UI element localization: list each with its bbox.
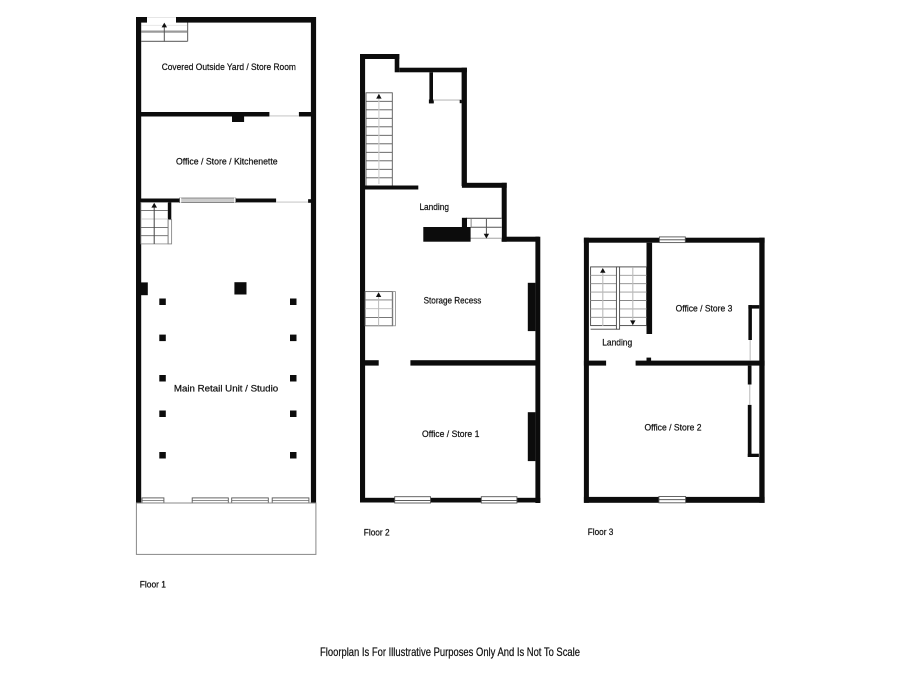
svg-text:Floor 3: Floor 3 bbox=[588, 527, 614, 537]
svg-text:Main Retail Unit / Studio: Main Retail Unit / Studio bbox=[174, 384, 278, 394]
svg-text:Office / Store 2: Office / Store 2 bbox=[645, 422, 702, 432]
svg-text:Landing: Landing bbox=[419, 202, 449, 212]
svg-text:Office / Store 3: Office / Store 3 bbox=[676, 304, 733, 314]
svg-text:Storage Recess: Storage Recess bbox=[424, 295, 482, 305]
svg-text:Floor 2: Floor 2 bbox=[364, 527, 390, 537]
svg-text:Landing: Landing bbox=[602, 337, 632, 347]
svg-text:Office / Store 1: Office / Store 1 bbox=[422, 429, 479, 439]
svg-text:Office / Store / Kitchenette: Office / Store / Kitchenette bbox=[176, 157, 278, 167]
svg-text:Floor 1: Floor 1 bbox=[140, 579, 166, 589]
svg-text:Covered Outside Yard / Store R: Covered Outside Yard / Store Room bbox=[162, 62, 297, 72]
svg-text:Floorplan Is For Illustrative: Floorplan Is For Illustrative Purposes O… bbox=[320, 645, 580, 659]
